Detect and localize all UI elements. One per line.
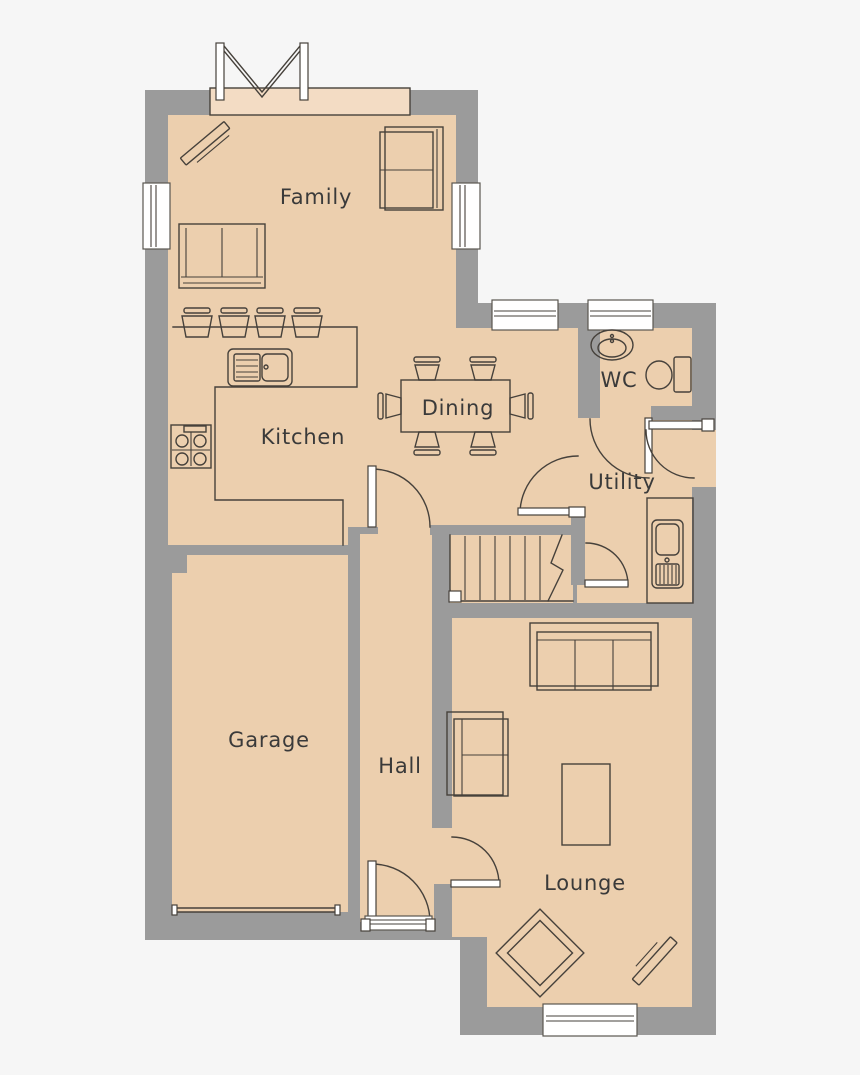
lounge-window xyxy=(543,1004,637,1036)
family-left-window xyxy=(143,183,170,249)
hall-lounge-doorway xyxy=(432,828,452,884)
room-label-utility: Utility xyxy=(588,470,655,494)
room-label-dining: Dining xyxy=(422,396,495,420)
front-door-sill xyxy=(365,916,432,930)
dining-floor xyxy=(434,328,577,525)
lounge-floor xyxy=(452,618,692,1007)
newel-post xyxy=(449,591,461,602)
room-label-wc: WC xyxy=(600,368,637,392)
room-label-garage: Garage xyxy=(228,728,310,752)
family-floor xyxy=(168,115,456,328)
room-label-family: Family xyxy=(280,185,352,209)
wc-window xyxy=(588,300,653,330)
floor-plan-svg: Family Kitchen Dining WC Utility Garage … xyxy=(0,0,860,1075)
room-label-hall: Hall xyxy=(378,754,422,778)
bay-floor xyxy=(210,88,410,115)
room-label-lounge: Lounge xyxy=(544,871,626,895)
dining-window xyxy=(492,300,558,330)
room-label-kitchen: Kitchen xyxy=(261,425,346,449)
family-right-window xyxy=(452,183,480,249)
floor-plan: Family Kitchen Dining WC Utility Garage … xyxy=(0,0,860,1075)
utility-external-doorway xyxy=(692,430,716,487)
